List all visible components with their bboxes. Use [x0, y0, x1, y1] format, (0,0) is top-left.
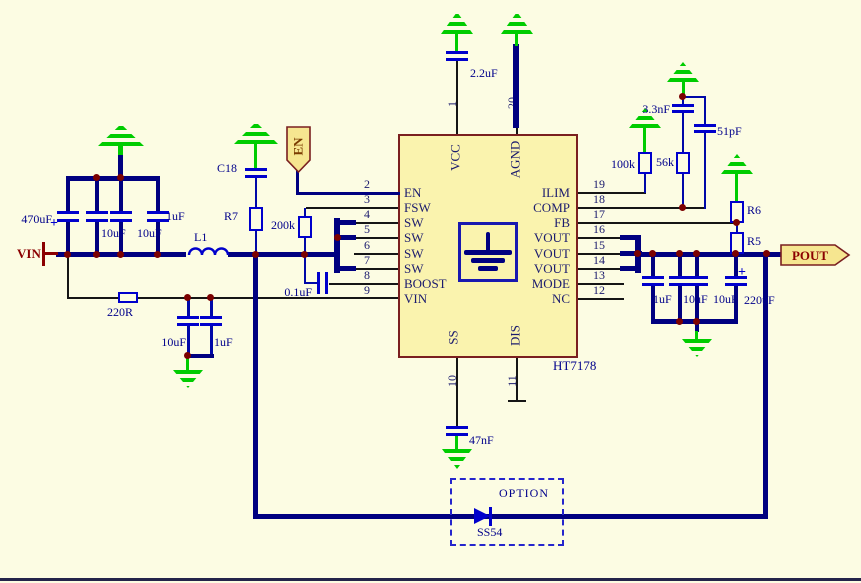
value-2.2uF: 2.2uF [470, 67, 498, 79]
pin-number-4: 4 [358, 208, 376, 220]
value-10uF: 10uF [683, 293, 708, 305]
pin-line-vout14 [578, 268, 624, 270]
pin-line-vout16 [578, 237, 624, 239]
ic-pin-label-ss: SS [447, 318, 460, 358]
capacitor-47nF [446, 426, 468, 429]
diode-ss54 [474, 508, 490, 524]
value-10uF: 10uF [101, 227, 126, 239]
lead [255, 178, 257, 207]
value-220uF: 220uF [744, 294, 775, 306]
capacitor-10uF [86, 219, 108, 222]
ground-stem [186, 358, 189, 371]
diode-ss54-bar [489, 507, 492, 526]
value-0.1uF: 0.1uF [280, 286, 312, 298]
ic-pin-label-comp: COMP [492, 201, 570, 214]
junction-dot [154, 251, 161, 258]
cap-lead [210, 299, 213, 317]
cap-lead [187, 299, 190, 317]
ic-pin-label-sw: SW [404, 216, 424, 229]
value-470uF: 470uF [6, 213, 52, 225]
schematic-sheet: HT7178 EN FSW SW SW SW SW BOOST VIN ILIM… [0, 0, 861, 583]
ground-stem [118, 146, 123, 155]
ref-c18: C18 [217, 162, 237, 174]
ic-pin-label-fb: FB [492, 216, 570, 229]
capacitor-0.1uF [325, 272, 328, 294]
pin-number-5: 5 [358, 223, 376, 235]
cap-lead [119, 179, 123, 212]
pin-line-sw4 [354, 222, 398, 224]
pad-ground-icon [486, 232, 490, 252]
cap-lead [95, 221, 99, 255]
junction-dot [64, 251, 71, 258]
pin-number-19: 19 [588, 178, 610, 190]
pin-number-18: 18 [588, 193, 610, 205]
junction-dot [207, 294, 214, 301]
capacitor-2.2uF [446, 51, 468, 54]
capacitor-3.3nF [672, 104, 694, 107]
value-1uF: 1uF [166, 210, 185, 222]
sw-bracket-stub [338, 266, 356, 271]
pin-line-comp [578, 207, 706, 209]
junction-dot [732, 250, 739, 257]
ic-pin-label-en: EN [404, 186, 421, 199]
junction-dot [679, 204, 686, 211]
value-220R: 220R [107, 306, 133, 318]
sw-drop-wire [253, 255, 258, 519]
lead [682, 113, 684, 152]
pin-line-mode [578, 283, 624, 285]
junction-dot [184, 352, 191, 359]
capacitor-1uF [642, 276, 664, 279]
capacitor-c18 [245, 168, 267, 171]
lead [644, 174, 646, 193]
junction-dot [252, 251, 259, 258]
junction-dot [93, 174, 100, 181]
ic-pin-label-vout: VOUT [492, 247, 570, 260]
cap-lead [66, 221, 70, 255]
lead [683, 96, 706, 98]
vout-bracket-stub [620, 266, 637, 271]
pin-line-ilim [578, 192, 646, 194]
vin-port-label: VIN [17, 247, 41, 260]
pin-line-boost [329, 283, 398, 285]
value-100k: 100k [603, 158, 635, 170]
pin-line-sw6 [354, 253, 398, 255]
en-wire [296, 192, 400, 195]
junction-dot [676, 250, 683, 257]
ground-symbol [682, 339, 712, 357]
pin-number-2: 2 [358, 178, 376, 190]
sw-bracket-bar [334, 218, 340, 273]
ic-pin-label-agnd: AGND [509, 130, 522, 190]
cap-lead [210, 326, 213, 356]
lead [304, 257, 306, 284]
capacitor-470uF [57, 219, 79, 222]
pin-line-dis [516, 358, 518, 402]
pout-rail [640, 252, 782, 257]
pin-number-13: 13 [588, 269, 610, 281]
pin-line-sw5 [354, 237, 398, 239]
polarity-plus-icon: + [50, 217, 58, 231]
junction-dot [693, 250, 700, 257]
ground-symbol [173, 370, 203, 388]
pin-line-fb [578, 222, 738, 224]
resistor-200k [298, 216, 312, 238]
ic-part-number: HT7178 [553, 359, 596, 372]
value-51pF: 51pF [717, 125, 742, 137]
polarity-plus-icon: + [738, 266, 746, 280]
junction-dot [634, 250, 641, 257]
junction-dot [679, 93, 686, 100]
junction-dot [334, 234, 341, 241]
value-3.3nF: 3.3nF [634, 103, 670, 115]
junction-dot [676, 318, 683, 325]
capacitor-10uF [110, 219, 132, 222]
junction-dot [763, 250, 770, 257]
value-10uF: 10uF [713, 293, 738, 305]
cap-lead [678, 286, 682, 322]
capacitor-1uF [200, 316, 222, 319]
resistor-220R [118, 292, 138, 303]
value-1uF: 1uF [214, 336, 233, 348]
ground-stem [643, 128, 646, 153]
pin-line-vout15 [578, 253, 624, 255]
ref-ss54: SS54 [477, 526, 502, 538]
resistor-r7 [249, 207, 263, 231]
ground-stem [515, 34, 518, 46]
ground-stem [455, 436, 458, 450]
ref-r7: R7 [224, 210, 238, 222]
junction-dot [301, 251, 308, 258]
junction-dot [117, 174, 124, 181]
pin-line-nc [578, 298, 624, 300]
sw-rail [228, 252, 338, 257]
capacitor-0.1uF [317, 272, 320, 294]
cap-lead [695, 257, 699, 277]
junction-dot [93, 251, 100, 258]
ground-stem [735, 174, 738, 202]
input-cap-top-bus [66, 176, 160, 181]
pin-line-fsw [306, 207, 398, 209]
ic-pin-label-nc: NC [492, 292, 570, 305]
ic-pin-label-boost: BOOST [404, 277, 447, 290]
vout-bracket-stub [620, 235, 637, 240]
ref-r5: R5 [747, 235, 761, 247]
sw-bracket-stub [338, 220, 356, 225]
capacitor-51pF [694, 124, 716, 127]
lead [704, 133, 706, 209]
pin-number-17: 17 [588, 208, 610, 220]
ic-pin-label-dis: DIS [509, 311, 522, 361]
pin-number-15: 15 [588, 239, 610, 251]
value-47nF: 47nF [469, 434, 494, 446]
capacitor-10uF [177, 316, 199, 319]
ic-pin-label-ilim: ILIM [492, 186, 570, 199]
inductor-l1 [186, 242, 234, 257]
option-label: OPTION [499, 487, 549, 499]
value-10uF: 10uF [137, 227, 162, 239]
ic-pin-label-sw: SW [404, 231, 424, 244]
ref-r6: R6 [747, 204, 761, 216]
pin-number-12: 12 [588, 284, 610, 296]
vin-port-lead [44, 252, 58, 255]
ground-symbol [234, 122, 278, 144]
sheet-border [0, 578, 861, 581]
value-56k: 56k [648, 156, 674, 168]
lead [682, 174, 684, 208]
ground-symbol [721, 154, 753, 174]
vin-drop-lead [67, 257, 69, 299]
value-10uF: 10uF [156, 336, 186, 348]
cap-lead [66, 179, 70, 212]
ic-pin-label-vin: VIN [404, 292, 427, 305]
agnd-wire [513, 44, 519, 128]
pin-number-14: 14 [588, 254, 610, 266]
cap-lead [156, 179, 160, 212]
capacitor-10uF [86, 211, 108, 214]
junction-dot [733, 219, 740, 226]
resistor-56k [676, 152, 690, 174]
junction-dot [693, 318, 700, 325]
ic-pin-label-sw: SW [404, 247, 424, 260]
junction-dot [184, 294, 191, 301]
pout-flag-label: POUT [786, 249, 834, 262]
ground-symbol [442, 449, 472, 469]
value-200k: 200k [263, 219, 295, 231]
ground-stem [695, 331, 698, 340]
dis-open-end [508, 400, 526, 402]
pin-number-8: 8 [358, 269, 376, 281]
ground-stem [455, 34, 458, 52]
ic-pin-label-sw: SW [404, 262, 424, 275]
ground-symbol [98, 124, 144, 146]
junction-dot [649, 250, 656, 257]
pin-line-ss [456, 358, 458, 428]
ic-pin-label-vout: VOUT [492, 262, 570, 275]
ground-stem [254, 144, 257, 169]
value-1uF: 1uF [653, 293, 672, 305]
ic-pin-label-mode: MODE [492, 277, 570, 290]
pin-number-6: 6 [358, 239, 376, 251]
capacitor-2.2uF [446, 58, 468, 61]
cap-lead [678, 257, 682, 277]
pin-number-16: 16 [588, 223, 610, 235]
capacitor-10uF [110, 211, 132, 214]
en-flag-label: EN [292, 120, 305, 174]
cap-lead [651, 257, 655, 277]
capacitor-470uF [57, 211, 79, 214]
ground-symbol [667, 62, 699, 82]
ic-pin-label-vcc: VCC [449, 133, 462, 183]
junction-dot [117, 251, 124, 258]
ref-l1: L1 [194, 231, 207, 243]
lead [704, 97, 706, 125]
pin-number-9: 9 [358, 284, 376, 296]
ic-pin-label-fsw: FSW [404, 201, 431, 214]
ground-symbol [441, 12, 473, 34]
ic-pin-label-vout: VOUT [492, 231, 570, 244]
cap-lead [95, 179, 99, 212]
ground-symbol [501, 12, 533, 34]
pin-number-7: 7 [358, 254, 376, 266]
capacitor-10uF [686, 276, 708, 279]
pin-line-vcc [456, 61, 458, 134]
pin-line-sw7 [354, 268, 398, 270]
